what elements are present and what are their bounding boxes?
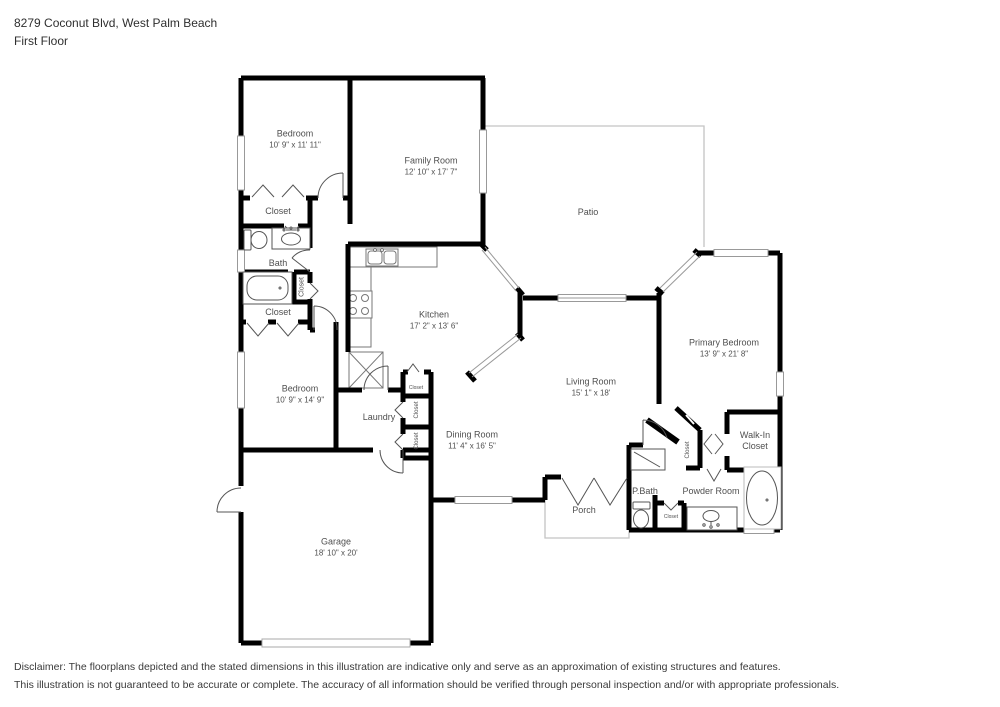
opening-chevron-icon — [707, 469, 721, 481]
room-label-walk-in-closet: Walk-In Closet — [729, 430, 781, 452]
room-label-porch: Porch — [572, 505, 596, 515]
room-label-closet-powder: Closet — [664, 514, 678, 520]
fixtures — [243, 227, 781, 530]
room-label-dining-room: Dining Room 11' 4" x 16' 5" — [446, 429, 498, 452]
room-label-closet-kitchen: Closet — [409, 385, 423, 391]
opening-chevron-icon — [407, 364, 419, 372]
room-label-laundry: Laundry — [363, 412, 396, 422]
window-icon — [238, 352, 245, 408]
room-label-family-room: Family Room 12' 10" x 17' 7" — [404, 155, 457, 178]
room-label-closet-tub: Closet — [299, 277, 306, 297]
patio-outline — [483, 126, 704, 247]
opening-chevron-icon — [704, 434, 723, 454]
bifold-door-icon — [247, 323, 299, 336]
bifold-door-icon — [252, 185, 304, 197]
window-icon — [480, 130, 487, 193]
floor-plan-svg — [0, 0, 1000, 707]
window-icon — [238, 250, 245, 272]
toilet-icon — [633, 502, 650, 528]
disclaimer-line-2: This illustration is not guaranteed to b… — [14, 679, 839, 691]
room-label-living-room: Living Room 15' 1" x 18' — [566, 376, 616, 399]
room-label-pbath: P.Bath — [632, 486, 658, 496]
room-label-bedroom2: Bedroom 10' 9" x 14' 9" — [276, 383, 324, 406]
room-label-closet-vestibule: Closet — [685, 441, 691, 458]
door-arc-icon — [380, 450, 403, 473]
room-label-powder-room: Powder Room — [682, 486, 739, 496]
door-arc-icon — [217, 488, 241, 512]
room-label-bedroom1: Bedroom 10' 9" x 11' 11" — [269, 128, 321, 151]
opening-chevron-icon — [310, 283, 318, 299]
toilet-icon — [244, 230, 267, 250]
room-label-closet-laundry2: Closet — [414, 432, 420, 449]
room-label-closet-hall: Closet — [265, 307, 291, 317]
room-label-primary-bedroom: Primary Bedroom 13' 9" x 21' 8" — [689, 337, 759, 360]
room-label-kitchen: Kitchen 17' 2" x 13' 6" — [410, 309, 458, 332]
sink-icon — [272, 227, 310, 249]
door-arc-icon — [292, 250, 310, 272]
sink-icon — [687, 507, 737, 530]
floor-plan-page: 8279 Coconut Blvd, West Palm Beach First… — [0, 0, 1000, 707]
disclaimer-line-1: Disclaimer: The floorplans depicted and … — [14, 661, 781, 673]
freestanding-tub-icon — [744, 467, 781, 529]
kitchen-counter — [346, 247, 437, 347]
room-label-bath: Bath — [269, 258, 288, 268]
room-label-patio: Patio — [578, 207, 599, 217]
window-icon — [777, 372, 784, 396]
angled-window-icon — [469, 247, 700, 377]
window-icon — [714, 250, 768, 257]
window-icon — [455, 497, 512, 504]
shower-icon — [631, 449, 665, 470]
bathtub-icon — [243, 272, 292, 304]
window-icon — [238, 136, 245, 190]
door-arc-icon — [318, 173, 343, 198]
washer-icon — [349, 352, 383, 388]
room-label-closet-laundry1: Closet — [414, 401, 420, 418]
room-label-closet-bedroom1: Closet — [265, 206, 291, 216]
garage-door-icon — [262, 639, 410, 647]
room-label-garage: Garage 18' 10" x 20' — [314, 536, 357, 559]
opening-chevron-icon — [664, 503, 678, 510]
french-door-icon — [562, 478, 627, 505]
